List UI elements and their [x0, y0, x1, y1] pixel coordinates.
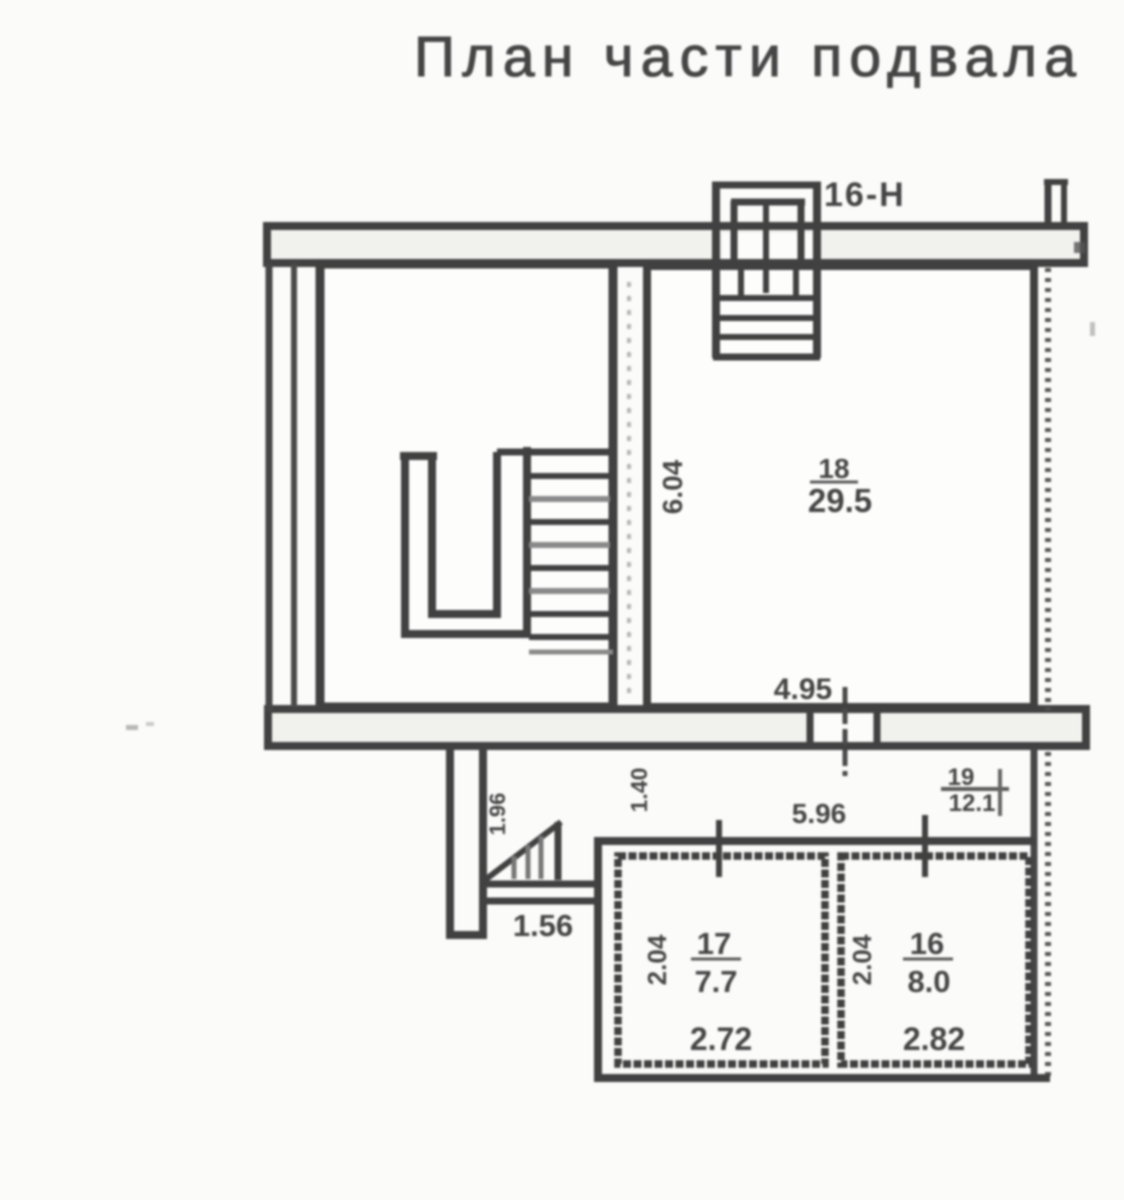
svg-text:План части подвала: План части подвала — [414, 25, 1083, 89]
svg-text:2.04: 2.04 — [847, 934, 877, 985]
svg-text:2.82: 2.82 — [903, 1021, 965, 1057]
svg-text:5.96: 5.96 — [792, 798, 847, 829]
svg-text:2.04: 2.04 — [642, 934, 672, 985]
svg-text:16: 16 — [910, 926, 944, 961]
svg-text:1.96: 1.96 — [485, 793, 510, 836]
svg-text:8.0: 8.0 — [907, 964, 950, 999]
svg-text:16-Н: 16-Н — [824, 176, 906, 214]
svg-text:7.7: 7.7 — [694, 964, 737, 999]
svg-text:17: 17 — [697, 926, 731, 961]
svg-text:1.40: 1.40 — [626, 768, 652, 813]
svg-text:12.1: 12.1 — [949, 790, 996, 817]
svg-text:6.04: 6.04 — [657, 459, 688, 514]
svg-text:1.56: 1.56 — [513, 908, 573, 943]
svg-text:2.72: 2.72 — [690, 1021, 752, 1057]
svg-text:4.95: 4.95 — [774, 673, 832, 706]
svg-text:29.5: 29.5 — [808, 482, 872, 519]
svg-text:18: 18 — [818, 453, 849, 484]
svg-text:19: 19 — [948, 764, 975, 791]
